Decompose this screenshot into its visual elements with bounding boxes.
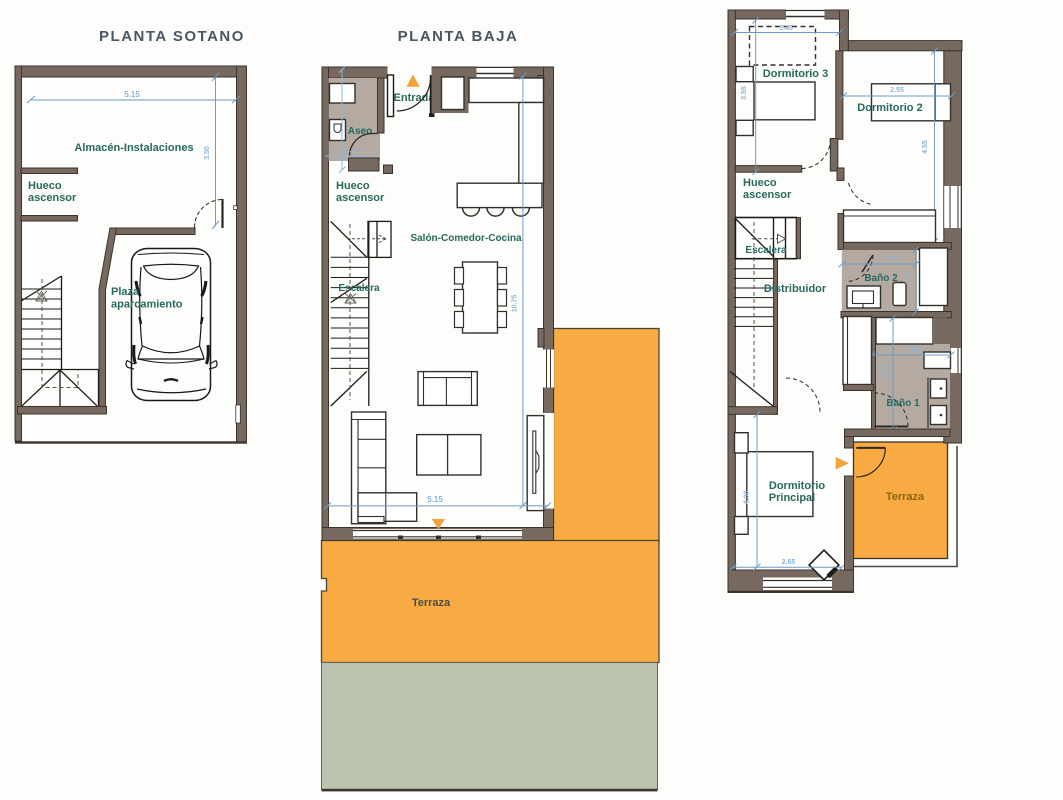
svg-text:Salón-Comedor-Cocina: Salón-Comedor-Cocina (410, 233, 522, 244)
svg-text:Terraza: Terraza (412, 597, 451, 609)
svg-text:Baño 1: Baño 1 (886, 398, 920, 409)
svg-text:Hueco: Hueco (28, 180, 62, 192)
svg-text:Principal: Principal (769, 492, 815, 504)
svg-text:2.55: 2.55 (890, 87, 904, 94)
svg-text:4.00: 4.00 (744, 491, 751, 505)
svg-text:Baño 2: Baño 2 (864, 273, 898, 284)
svg-text:3.55: 3.55 (741, 86, 748, 100)
svg-text:ascensor: ascensor (28, 192, 77, 204)
svg-text:Escalera: Escalera (745, 245, 787, 256)
svg-text:Dormitorio: Dormitorio (769, 480, 826, 492)
svg-text:10.75: 10.75 (512, 295, 519, 313)
svg-text:aparcamiento: aparcamiento (111, 299, 183, 311)
svg-text:1.50: 1.50 (905, 271, 912, 284)
svg-text:2.75: 2.75 (882, 364, 889, 378)
svg-text:ascensor: ascensor (336, 192, 385, 204)
svg-text:ascensor: ascensor (743, 189, 792, 201)
svg-text:2.55: 2.55 (888, 255, 901, 262)
svg-text:Hueco: Hueco (336, 180, 370, 192)
svg-text:PLANTA BAJA: PLANTA BAJA (398, 28, 519, 45)
svg-text:Hueco: Hueco (743, 177, 777, 189)
svg-text:5.15: 5.15 (124, 90, 140, 99)
svg-text:Distribuidor: Distribuidor (764, 283, 827, 295)
svg-text:Almacén-Instalaciones: Almacén-Instalaciones (74, 142, 193, 154)
svg-text:3.45: 3.45 (779, 25, 793, 32)
svg-text:1.20: 1.20 (346, 147, 359, 154)
svg-text:5.15: 5.15 (427, 495, 443, 504)
svg-text:Terraza: Terraza (886, 491, 925, 503)
svg-text:Escalera: Escalera (338, 283, 380, 294)
svg-text:2.65: 2.65 (782, 559, 796, 566)
svg-text:Entrada: Entrada (394, 92, 436, 104)
svg-text:4.55: 4.55 (922, 140, 929, 154)
svg-text:1.80: 1.80 (907, 346, 920, 353)
svg-text:Aseo: Aseo (348, 126, 372, 137)
svg-text:PLANTA SOTANO: PLANTA SOTANO (99, 28, 245, 45)
svg-text:Plaza: Plaza (111, 286, 140, 298)
svg-text:Dormitorio 3: Dormitorio 3 (763, 68, 828, 80)
svg-text:Dormitorio 2: Dormitorio 2 (857, 102, 922, 114)
svg-text:3.50: 3.50 (204, 146, 211, 160)
